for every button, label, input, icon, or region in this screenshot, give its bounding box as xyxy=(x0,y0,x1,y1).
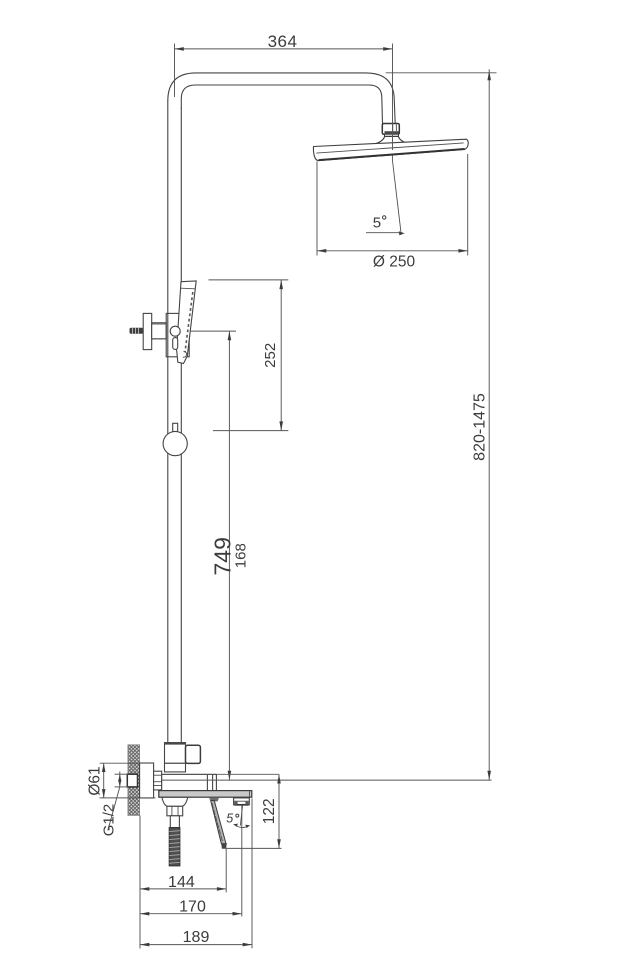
svg-text:5: 5 xyxy=(373,215,381,232)
svg-text:820-1475: 820-1475 xyxy=(472,393,489,461)
svg-text:749: 749 xyxy=(210,537,236,575)
svg-text:122: 122 xyxy=(261,798,278,824)
svg-text:252: 252 xyxy=(262,343,279,368)
svg-text:Ø 250: Ø 250 xyxy=(373,253,416,270)
svg-text:G1/2: G1/2 xyxy=(101,804,118,837)
svg-text:144: 144 xyxy=(168,874,195,891)
svg-text:170: 170 xyxy=(179,898,206,915)
svg-text:5: 5 xyxy=(226,811,233,825)
svg-text:168: 168 xyxy=(233,543,250,568)
svg-text:Ø61: Ø61 xyxy=(87,766,104,795)
svg-text:364: 364 xyxy=(268,32,298,51)
svg-text:189: 189 xyxy=(183,929,210,946)
